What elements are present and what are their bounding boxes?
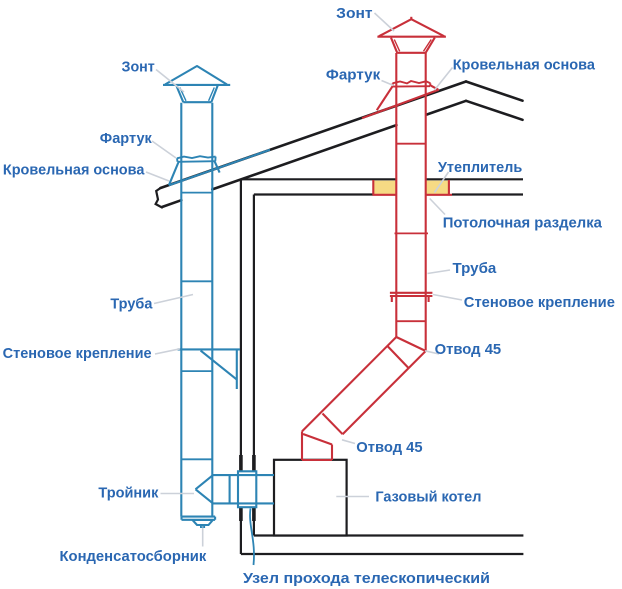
svg-text:Стеновое крепление: Стеновое крепление (464, 294, 615, 311)
svg-text:Отвод 45: Отвод 45 (356, 439, 422, 456)
svg-text:Кровельная основа: Кровельная основа (3, 162, 145, 179)
svg-text:Утеплитель: Утеплитель (438, 159, 522, 176)
svg-text:Фартук: Фартук (100, 130, 152, 147)
svg-text:Отвод 45: Отвод 45 (435, 341, 502, 358)
svg-text:Стеновое крепление: Стеновое крепление (3, 345, 152, 362)
svg-text:Потолочная разделка: Потолочная разделка (443, 215, 603, 232)
svg-text:Конденсатосборник: Конденсатосборник (60, 548, 207, 565)
svg-text:Узел прохода телескопический: Узел прохода телескопический (243, 570, 490, 587)
svg-text:Труба: Труба (110, 296, 153, 313)
svg-text:Кровельная основа: Кровельная основа (453, 56, 596, 73)
svg-text:Газовый котел: Газовый котел (375, 489, 481, 506)
svg-text:Зонт: Зонт (122, 59, 155, 76)
svg-text:Зонт: Зонт (336, 5, 372, 22)
svg-text:Труба: Труба (453, 260, 497, 277)
svg-text:Тройник: Тройник (98, 485, 158, 502)
svg-text:Фартук: Фартук (326, 67, 381, 84)
